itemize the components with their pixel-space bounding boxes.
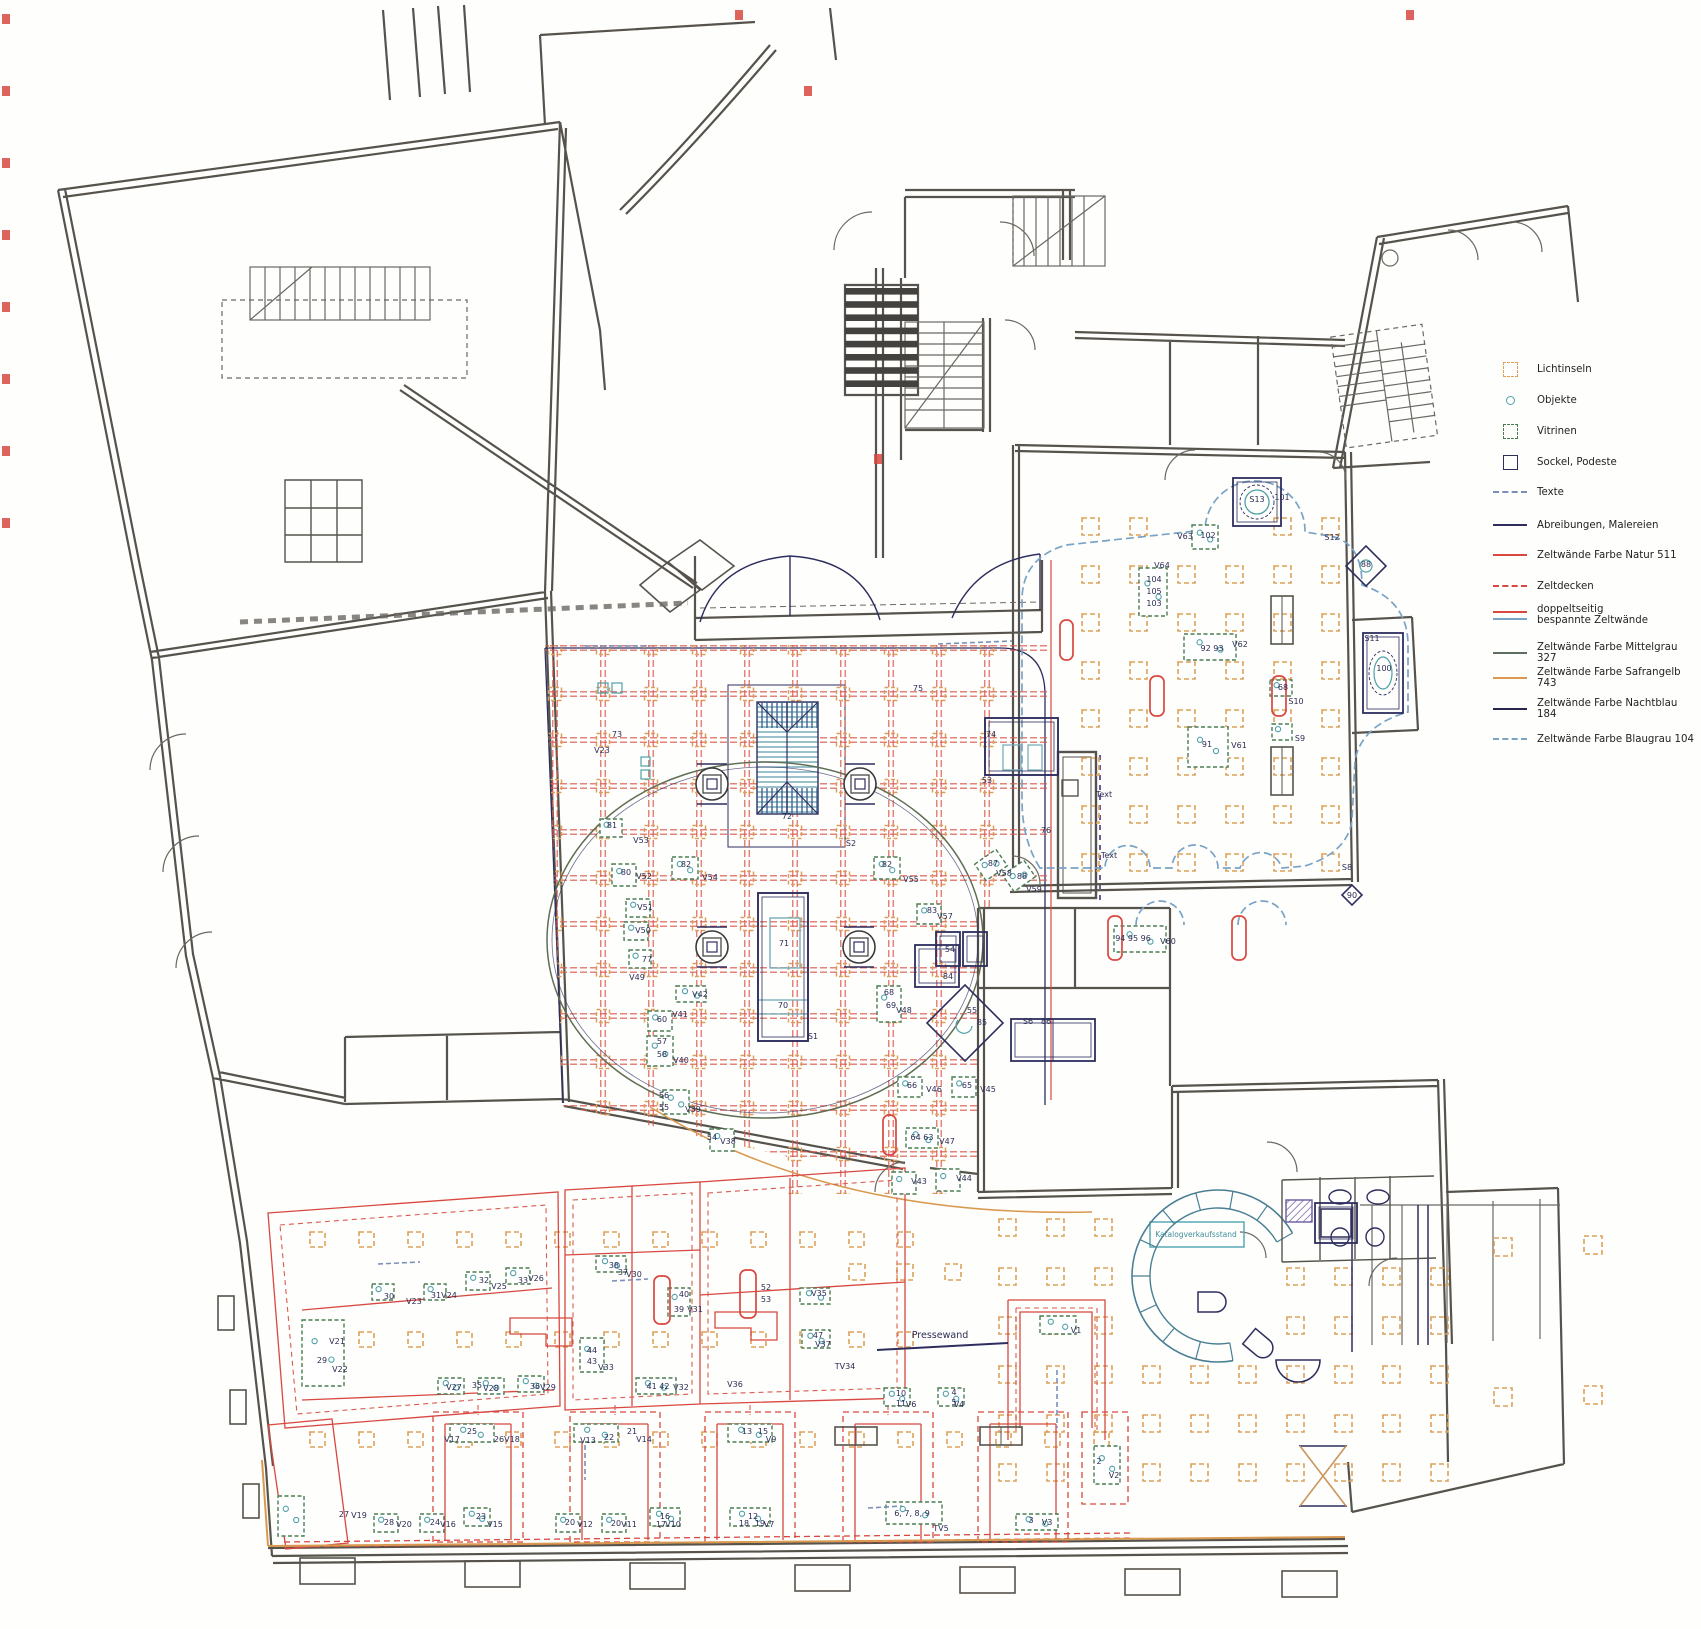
lichtinsel-node <box>741 964 754 977</box>
vitrine-icon <box>278 1496 304 1536</box>
lichtinsel-node <box>885 826 898 839</box>
legend-item-13: Zeltwände Farbe Blaugrau 104 <box>1492 730 1694 748</box>
plan-label: 44 <box>587 1346 597 1355</box>
plan-label: 54 <box>945 945 955 954</box>
column <box>696 931 728 963</box>
plan-label: V59 <box>1026 885 1042 894</box>
column <box>843 931 875 963</box>
lichtinsel-node <box>741 780 754 793</box>
lichtinsel-square <box>1322 758 1339 775</box>
lichtinsel-square <box>800 1232 815 1247</box>
legend-swatch-line-safrangelb <box>1493 677 1527 679</box>
plan-label: V17 <box>444 1435 460 1444</box>
lichtinsel-node <box>789 826 802 839</box>
lichtinsel-square <box>849 1264 865 1280</box>
circular-desk <box>1132 1190 1292 1362</box>
column <box>844 768 876 800</box>
lichtinsel-node <box>597 1010 610 1023</box>
plan-label: 66 <box>907 1081 917 1090</box>
red-bench <box>1232 916 1246 960</box>
plan-label: S12 <box>1324 533 1339 542</box>
scan-mark <box>2 518 10 528</box>
lichtinsel-square <box>1383 1366 1400 1383</box>
plan-label: V43 <box>911 1177 927 1186</box>
plan-label: V9 <box>766 1435 777 1444</box>
lichtinsel-square <box>1322 662 1339 679</box>
floor-plan-drawing: 7375727170S1S27453768180V53V5282V54V51V5… <box>0 0 1701 1629</box>
plan-label: 53 <box>982 776 992 785</box>
lichtinsel-node <box>837 734 850 747</box>
lichtinsel-node <box>597 872 610 885</box>
plan-label: 2 <box>1096 1457 1101 1466</box>
plan-label: V55 <box>903 875 919 884</box>
plan-label: S2 <box>846 839 856 848</box>
lichtinsel-node <box>885 780 898 793</box>
plan-label: 30 <box>384 1292 394 1301</box>
lichtinsel-square <box>1584 1386 1602 1404</box>
plan-label: 24 <box>430 1518 440 1527</box>
lichtinsel-square <box>1383 1415 1400 1432</box>
lichtinsel-square <box>1082 518 1099 535</box>
lichtinsel-square <box>1335 1366 1352 1383</box>
plan-label: 56 <box>659 1091 669 1100</box>
lichtinsel-square <box>1130 662 1147 679</box>
plan-label: 70 <box>778 1001 788 1010</box>
desk-ring <box>1150 1208 1277 1344</box>
lichtinsel-node <box>789 1102 802 1115</box>
plan-label: 69 <box>886 1001 896 1010</box>
lichtinsel-square <box>555 1332 570 1347</box>
legend-swatch-line-zeltdecken <box>1493 585 1527 587</box>
plan-label: 92 93 <box>1201 644 1224 653</box>
lichtinsel-square <box>1130 758 1147 775</box>
object-72-hatched <box>757 702 818 814</box>
lichtinsel-square <box>1082 614 1099 631</box>
plan-label: 94 95 96 <box>1115 934 1151 943</box>
scan-mark <box>2 302 10 312</box>
plan-label: 74 <box>986 730 996 739</box>
lichtinsel-square <box>1287 1268 1304 1285</box>
plan-label: V32 <box>673 1383 689 1392</box>
lichtinsel-square <box>359 1232 374 1247</box>
plan-label: V3 <box>1042 1518 1053 1527</box>
desk-spoke <box>1140 1305 1156 1313</box>
plan-label: V60 <box>1160 937 1176 946</box>
legend-swatch-line-abreibungen <box>1493 524 1527 526</box>
lichtinsel-square <box>702 1232 717 1247</box>
lichtinsel-square <box>1431 1268 1448 1285</box>
lichtinsel-node <box>933 688 946 701</box>
plan-label: 54 <box>707 1133 717 1142</box>
lichtinsel-square <box>1082 662 1099 679</box>
desk-spoke <box>1163 1328 1175 1342</box>
plan-label: V23 <box>594 746 610 755</box>
plan-label: V6 <box>906 1400 917 1409</box>
lichtinsel-square <box>1191 1366 1208 1383</box>
plan-label: 20 <box>565 1518 575 1527</box>
lichtinsel-node <box>885 1194 898 1207</box>
legend-label: Objekte <box>1537 395 1577 406</box>
legend-label: Lichtinseln <box>1537 364 1592 375</box>
lichtinsel-square <box>1226 662 1243 679</box>
plan-label: V49 <box>629 973 645 982</box>
lichtinsel-node <box>933 1102 946 1115</box>
lichtinsel-square <box>1095 1219 1112 1236</box>
lichtinsel-node <box>693 826 706 839</box>
legend-item-12: Zeltwände Farbe Nachtblau 184 <box>1492 700 1698 718</box>
plan-label: 91 <box>1202 740 1212 749</box>
lichtinsel-node <box>549 1194 562 1207</box>
lichtinsel-node <box>981 1102 994 1115</box>
plan-label: 23 <box>476 1512 486 1521</box>
lichtinsel-square <box>555 1232 570 1247</box>
legend-item-10: Zeltwände Farbe Mittelgrau 327 <box>1492 644 1698 662</box>
plan-label: 18 <box>739 1519 749 1528</box>
lichtinsel-square <box>1287 1415 1304 1432</box>
lichtinsel-node <box>597 1056 610 1069</box>
plan-label: V37 <box>815 1340 831 1349</box>
lichtinsel-square <box>1095 1268 1112 1285</box>
lichtinsel-node <box>885 918 898 931</box>
lichtinsel-node <box>693 1194 706 1207</box>
texte-line <box>612 1279 648 1281</box>
lichtinsel-node <box>981 688 994 701</box>
plan-label: 53 <box>761 1295 771 1304</box>
lichtinsel-square <box>310 1232 325 1247</box>
safrangelb-facade-line <box>262 1460 1345 1546</box>
legend-swatch-line-mittelgrau <box>1493 652 1527 654</box>
legend-swatch-circle-teal <box>1506 396 1515 405</box>
plan-label: 101 <box>1274 493 1289 502</box>
scan-mark <box>735 10 743 20</box>
lichtinsel-node <box>933 1148 946 1161</box>
lichtinsel-square <box>1143 1415 1160 1432</box>
plan-label: V58 <box>996 869 1012 878</box>
scan-mark <box>874 454 882 464</box>
plan-label: 76 <box>1041 826 1051 835</box>
lichtinsel-square <box>1431 1415 1448 1432</box>
plan-label: V42 <box>692 990 708 999</box>
lichtinsel-square <box>1082 710 1099 727</box>
legend-label: Zeltdecken <box>1537 581 1594 592</box>
lichtinsel-square <box>1226 710 1243 727</box>
lichtinsel-square <box>702 1432 717 1447</box>
plan-label: 26 <box>494 1435 504 1444</box>
plan-label: S13 <box>1249 495 1264 504</box>
lichtinsel-square <box>1178 614 1195 631</box>
plan-label: 105 <box>1146 587 1161 596</box>
lichtinsel-node <box>885 1056 898 1069</box>
lichtinsel-node <box>645 688 658 701</box>
plan-label: 88 <box>1361 560 1371 569</box>
plan-label: V22 <box>332 1365 348 1374</box>
desk-ring <box>1132 1190 1292 1362</box>
plan-label: V1 <box>1071 1326 1082 1335</box>
plan-label: V20 <box>396 1520 412 1529</box>
plan-label: V29 <box>540 1383 556 1392</box>
lichtinsel-node <box>741 826 754 839</box>
legend-label: Zeltwände Farbe Blaugrau 104 <box>1537 734 1694 745</box>
lichtinsel-square <box>947 1432 962 1447</box>
red-rooms <box>268 1168 1130 1549</box>
lichtinsel-square <box>751 1232 766 1247</box>
lichtinsel-square <box>1335 1268 1352 1285</box>
plan-label: V52 <box>636 872 652 881</box>
lichtinsel-node <box>549 918 562 931</box>
plan-label: 4 <box>951 1388 956 1397</box>
vitrine-icon <box>1272 724 1292 740</box>
plan-label: V64 <box>1154 561 1170 570</box>
plan-label: 41 42 <box>647 1382 670 1391</box>
lichtinsel-node <box>741 872 754 885</box>
plan-label: V4 <box>954 1400 965 1409</box>
plan-label: 40 <box>679 1290 689 1299</box>
plan-label: 73 <box>612 730 622 739</box>
lichtinsel-square <box>999 1464 1016 1481</box>
lichtinsel-node <box>837 1010 850 1023</box>
lichtinsel-node <box>837 826 850 839</box>
column <box>696 768 728 800</box>
plan-label: 82 <box>681 860 691 869</box>
lichtinsel-node <box>549 1056 562 1069</box>
revolving-door <box>1300 1446 1346 1506</box>
plan-label: V38 <box>720 1137 736 1146</box>
plan-label: 32 <box>479 1276 489 1285</box>
plan-label: 75 <box>913 684 923 693</box>
legend-label: Zeltwände Farbe Safrangelb 743 <box>1537 667 1698 689</box>
red-bench <box>740 1270 756 1318</box>
plan-label: V61 <box>1231 741 1247 750</box>
plan-label: 102 <box>1200 531 1215 540</box>
lichtinsel-node <box>981 1194 994 1207</box>
legend-item-2: Objekte <box>1492 391 1577 409</box>
plan-label: V46 <box>926 1085 942 1094</box>
plan-label: 81 <box>607 821 617 830</box>
lichtinsel-node <box>693 1010 706 1023</box>
lichtinsel-square <box>1226 566 1243 583</box>
lichtinsel-node <box>549 1102 562 1115</box>
legend-swatch-line-blaugrau <box>1493 738 1527 740</box>
plan-label: 82 <box>882 860 892 869</box>
plan-label: V30 <box>626 1270 642 1279</box>
scan-red-marks <box>2 10 1414 528</box>
vitrine-icon <box>302 1320 344 1386</box>
lichtinsel-node <box>645 1148 658 1161</box>
lichtinsel-square <box>1431 1464 1448 1481</box>
lichtinsel-node <box>597 1148 610 1161</box>
lichtinsel-square <box>1130 854 1147 871</box>
plan-label: 58 <box>657 1050 667 1059</box>
plan-label: Pressewand <box>912 1330 969 1341</box>
lichtinsel-node <box>981 1148 994 1161</box>
plan-label: 13 <box>742 1427 752 1436</box>
plan-label: V45 <box>980 1085 996 1094</box>
lichtinsel-node <box>693 688 706 701</box>
lichtinsel-square <box>408 1432 423 1447</box>
lichtinsel-node <box>693 918 706 931</box>
lichtinsel-node <box>693 1148 706 1161</box>
lichtinsel-square <box>1191 1464 1208 1481</box>
desk-spoke <box>1230 1191 1233 1209</box>
lichtinsel-square <box>1383 1317 1400 1334</box>
plan-label: 43 <box>587 1357 597 1366</box>
plan-label: 22 <box>604 1433 614 1442</box>
legend-item-3: Vitrinen <box>1492 422 1577 440</box>
lichtinsel-node <box>933 872 946 885</box>
lichtinsel-square <box>1287 1317 1304 1334</box>
lichtinsel-node <box>597 780 610 793</box>
plan-label: 39 <box>674 1305 684 1314</box>
texte-line <box>378 1262 420 1264</box>
lichtinsel-square <box>702 1332 717 1347</box>
plan-label: S8 <box>1342 863 1352 872</box>
lichtinsel-node <box>837 872 850 885</box>
lichtinsel-square <box>310 1432 325 1447</box>
lichtinsel-square <box>1584 1236 1602 1254</box>
plan-label: V44 <box>956 1174 972 1183</box>
plan-label: S1 <box>808 1032 818 1041</box>
plan-label: 88 <box>1017 872 1027 881</box>
plan-label: V16 <box>440 1520 456 1529</box>
lichtinsel-node <box>837 688 850 701</box>
lichtinsel-square <box>1335 1415 1352 1432</box>
plan-label: V21 <box>329 1337 345 1346</box>
lichtinsel-node <box>933 1056 946 1069</box>
hatched-stair <box>845 288 918 387</box>
plan-label: 11 <box>896 1399 906 1408</box>
lichtinsel-square <box>1383 1464 1400 1481</box>
lichtinsel-square <box>1494 1388 1512 1406</box>
lichtinsel-square <box>849 1332 864 1347</box>
legend-swatch-line-nachtblau <box>1493 708 1527 710</box>
podest-boxes <box>758 478 1403 1243</box>
legend-swatch-line-texte <box>1493 491 1527 493</box>
plan-label: V51 <box>637 903 653 912</box>
legend-label: Zeltwände Farbe Natur 511 <box>1537 550 1677 561</box>
wc-area <box>1282 1176 1436 1262</box>
plan-label: V39 <box>685 1105 701 1114</box>
plan-label: S6 <box>1023 1017 1033 1026</box>
plan-label: 36 <box>530 1382 540 1391</box>
lichtinsel-node <box>741 734 754 747</box>
scan-mark <box>2 374 10 384</box>
lichtinsel-node <box>933 734 946 747</box>
lichtinsel-square <box>1130 806 1147 823</box>
lichtinsel-square <box>1130 518 1147 535</box>
lichtinsel-square <box>1239 1464 1256 1481</box>
legend-swatch-line-natur <box>1493 554 1527 556</box>
desk-spoke <box>1277 1233 1293 1242</box>
plan-label: V50 <box>635 926 651 935</box>
plan-label: V19 <box>351 1511 367 1520</box>
lichtinsel-square <box>999 1268 1016 1285</box>
lichtinsel-node <box>981 1056 994 1069</box>
lichtinsel-square <box>1045 1432 1060 1447</box>
scan-mark <box>804 86 812 96</box>
lichtinsel-square <box>604 1332 619 1347</box>
lichtinsel-square <box>1178 806 1195 823</box>
lichtinsel-node <box>741 1056 754 1069</box>
lichtinsel-node <box>837 1056 850 1069</box>
lichtinsel-square <box>1143 1464 1160 1481</box>
legend-swatch-line-doppel <box>1493 611 1527 620</box>
plan-label: V18 <box>504 1435 520 1444</box>
legend-item-8: Zeltdecken <box>1492 577 1594 595</box>
plan-label: V53 <box>633 836 649 845</box>
plan-label: Text <box>1100 851 1117 860</box>
lichtinsel-square <box>1274 566 1291 583</box>
plan-label: S10 <box>1288 697 1303 706</box>
plan-label: Text <box>1095 790 1112 799</box>
lichtinsel-node <box>885 688 898 701</box>
lichtinsel-node <box>693 734 706 747</box>
legend-item-1: Lichtinseln <box>1492 360 1592 378</box>
plan-label: 10 <box>896 1389 906 1398</box>
lichtinsel-node <box>549 1148 562 1161</box>
plan-label: 3 <box>1028 1516 1033 1525</box>
plan-label: Katalogverkaufsstand <box>1155 1230 1237 1239</box>
plan-label: V35 <box>811 1289 827 1298</box>
plan-label: V23 <box>406 1297 422 1306</box>
plan-label: S9 <box>1295 734 1305 743</box>
lichtinsel-node <box>885 734 898 747</box>
legend-swatch-sq-orange <box>1503 362 1518 377</box>
plan-label: V28 <box>483 1384 499 1393</box>
red-bench <box>1150 676 1164 716</box>
plan-label: V25 <box>491 1282 507 1291</box>
plan-label: V12 <box>577 1520 593 1529</box>
plan-label: V41 <box>672 1010 688 1019</box>
plan-label: 65 <box>962 1081 972 1090</box>
lichtinsel-square <box>1226 806 1243 823</box>
lichtinsel-node <box>789 1056 802 1069</box>
desk-spoke <box>1257 1206 1267 1221</box>
lichtinsel-node <box>597 1194 610 1207</box>
plan-label: 104 <box>1146 575 1161 584</box>
plan-label: V54 <box>702 873 718 882</box>
lichtinsel-square <box>1143 1366 1160 1383</box>
plan-label: 77 <box>642 955 652 964</box>
lichtinsel-square <box>849 1232 864 1247</box>
plan-label: 33 <box>518 1276 528 1285</box>
plan-label: V24 <box>441 1291 457 1300</box>
plan-label: 72 <box>782 812 792 821</box>
sockel-podest-inner <box>967 936 983 962</box>
lichtinsel-square <box>1094 1432 1109 1447</box>
plan-label: 71 <box>779 939 789 948</box>
legend-swatch-sq-navy <box>1503 455 1518 470</box>
lichtinsel-node <box>597 918 610 931</box>
lichtinsel-node <box>741 688 754 701</box>
legend-item-4: Sockel, Podeste <box>1492 453 1617 471</box>
legend-label: doppeltseitig bespannte Zeltwände <box>1537 604 1648 626</box>
lichtinsel-square <box>1178 566 1195 583</box>
plan-label: V26 <box>528 1274 544 1283</box>
lichtinsel-square <box>1322 566 1339 583</box>
desk-spoke <box>1196 1342 1201 1359</box>
lichtinsel-square <box>408 1232 423 1247</box>
lichtinsel-node <box>597 964 610 977</box>
plan-label: 29 <box>317 1356 327 1365</box>
plan-label: 80 <box>621 868 631 877</box>
plan-label: 31 <box>431 1291 441 1300</box>
lichtinsel-node <box>789 1010 802 1023</box>
plan-label: 25 <box>467 1427 477 1436</box>
lichtinsel-square <box>408 1332 423 1347</box>
lichtinsel-square <box>1274 806 1291 823</box>
lichtinsel-node <box>741 918 754 931</box>
lichtinsel-square <box>1239 1366 1256 1383</box>
